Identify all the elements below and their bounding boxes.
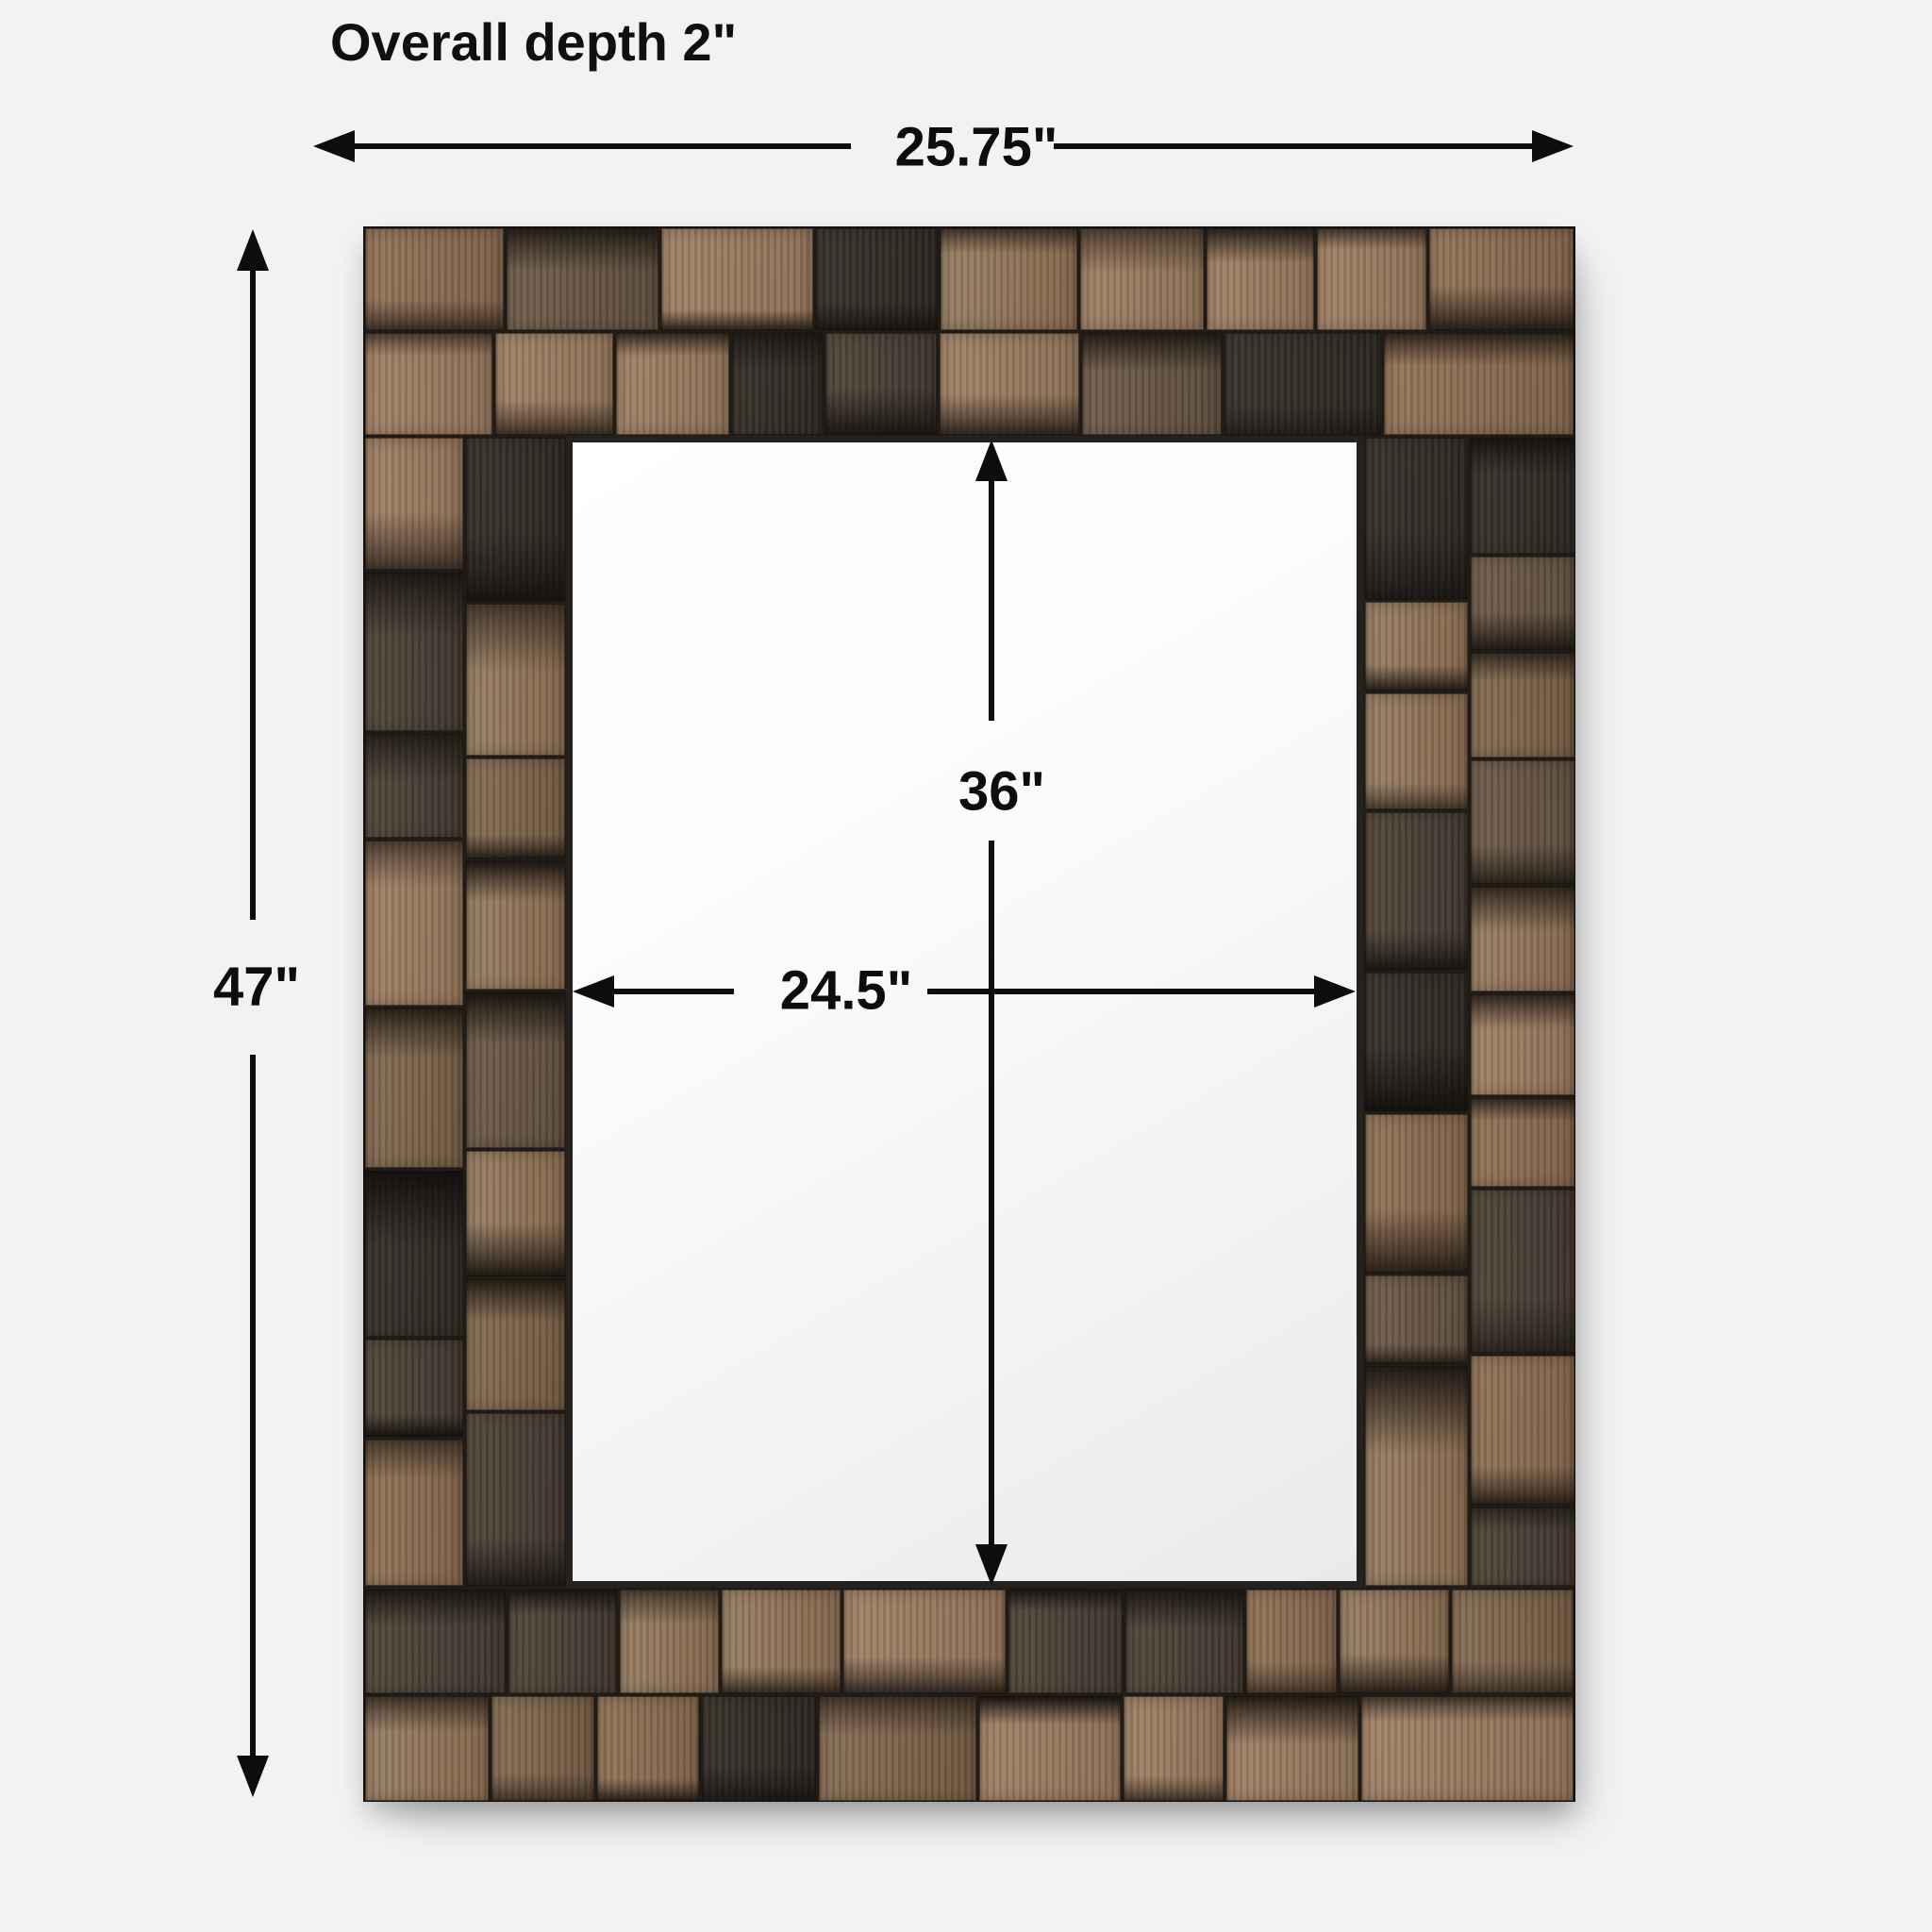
arrow-right-icon — [1532, 130, 1574, 162]
frame-wood-block — [1124, 1696, 1223, 1801]
frame-wood-block — [941, 228, 1077, 330]
frame-wood-block — [1365, 812, 1469, 971]
frame-wood-block — [365, 734, 464, 838]
frame-wood-block — [1471, 1098, 1574, 1187]
frame-wood-block — [365, 1340, 464, 1437]
frame-wood-block — [940, 333, 1079, 435]
frame-wood-block — [1471, 653, 1574, 758]
frame-wood-block — [365, 1440, 464, 1586]
frame-wood-block — [466, 861, 565, 990]
arrow-right-icon — [1314, 975, 1356, 1008]
arrow-left-icon — [313, 130, 355, 162]
frame-wood-block — [816, 228, 938, 330]
dimension-line — [1054, 143, 1538, 149]
frame-wood-block — [979, 1696, 1121, 1801]
mirror-surface — [566, 436, 1363, 1588]
frame-wood-block — [1361, 1696, 1574, 1801]
mirror-width-label: 24.5" — [780, 959, 912, 1023]
frame-wood-block — [365, 333, 493, 435]
overall-height-label: 47" — [213, 956, 300, 1019]
dimension-line — [250, 271, 256, 920]
frame-wood-block — [365, 1171, 464, 1337]
frame-wood-block — [722, 1590, 841, 1694]
mirror-height-label: 36" — [958, 760, 1045, 824]
frame-wood-block — [1317, 228, 1426, 330]
frame-wood-block — [819, 1696, 976, 1801]
arrow-left-icon — [573, 975, 614, 1008]
frame-wood-block — [1226, 1696, 1358, 1801]
frame-wood-block — [1340, 1590, 1449, 1694]
frame-wood-block — [507, 228, 658, 330]
frame-wood-block — [702, 1696, 816, 1801]
frame-wood-block — [1365, 602, 1469, 691]
frame-wood-block — [1365, 438, 1469, 599]
dimension-line — [927, 989, 1318, 994]
frame-wood-block — [365, 573, 464, 731]
frame-wood-block — [1471, 1356, 1574, 1504]
frame-wood-block — [1365, 1275, 1469, 1363]
frame-wood-block — [843, 1590, 1006, 1694]
frame-wood-block — [597, 1696, 699, 1801]
mirror-frame — [363, 226, 1575, 1802]
frame-wood-block — [1246, 1590, 1337, 1694]
frame-wood-block — [466, 1151, 565, 1276]
frame-wood-block — [1008, 1590, 1123, 1694]
dimension-line — [613, 989, 734, 994]
frame-wood-block — [1365, 1366, 1469, 1587]
frame-wood-block — [466, 1279, 565, 1410]
dimension-line — [250, 1055, 256, 1757]
frame-wood-block — [365, 1590, 507, 1694]
frame-wood-block — [365, 438, 464, 570]
frame-wood-block — [1452, 1590, 1574, 1694]
frame-wood-block — [620, 1590, 718, 1694]
frame-wood-block — [1471, 557, 1574, 650]
frame-wood-block — [661, 228, 813, 330]
frame-wood-block — [466, 1413, 565, 1587]
frame-wood-block — [1471, 887, 1574, 991]
mirror-dimension-diagram: Overall depth 2" 25.75" 47" 36" 24.5" — [0, 0, 1932, 1932]
dimension-line — [353, 143, 851, 149]
overall-width-label: 25.75" — [895, 116, 1058, 179]
frame-wood-block — [466, 992, 565, 1148]
arrow-down-icon — [975, 1544, 1008, 1586]
frame-wood-block — [466, 758, 565, 858]
frame-wood-block — [825, 333, 937, 435]
frame-wood-block — [466, 604, 565, 756]
frame-wood-block — [1365, 1114, 1469, 1273]
frame-wood-block — [1207, 228, 1314, 330]
frame-wood-block — [616, 333, 729, 435]
frame-wood-block — [365, 1008, 464, 1167]
frame-wood-block — [1471, 760, 1574, 884]
frame-wood-block — [732, 333, 822, 435]
arrow-down-icon — [237, 1756, 269, 1797]
frame-wood-block — [1224, 333, 1381, 435]
overall-depth-label: Overall depth 2" — [330, 11, 737, 73]
frame-wood-block — [1125, 1590, 1243, 1694]
frame-wood-block — [491, 1696, 593, 1801]
frame-wood-block — [1429, 228, 1574, 330]
frame-wood-block — [365, 228, 504, 330]
frame-wood-block — [1471, 1190, 1574, 1354]
dimension-line — [989, 841, 994, 1546]
frame-wood-block — [1365, 693, 1469, 809]
dimension-line — [989, 481, 994, 721]
arrow-up-icon — [975, 440, 1008, 481]
frame-wood-block — [1082, 333, 1222, 435]
frame-wood-block — [1471, 438, 1574, 554]
frame-wood-block — [365, 1696, 490, 1801]
frame-wood-block — [466, 438, 565, 602]
frame-wood-block — [1384, 333, 1574, 435]
frame-wood-block — [1471, 1507, 1574, 1587]
arrow-up-icon — [237, 229, 269, 271]
frame-wood-block — [1365, 973, 1469, 1111]
frame-wood-block — [1080, 228, 1204, 330]
frame-wood-block — [495, 333, 613, 435]
frame-wood-block — [1471, 994, 1574, 1094]
frame-wood-block — [365, 841, 464, 1006]
frame-wood-block — [508, 1590, 617, 1694]
